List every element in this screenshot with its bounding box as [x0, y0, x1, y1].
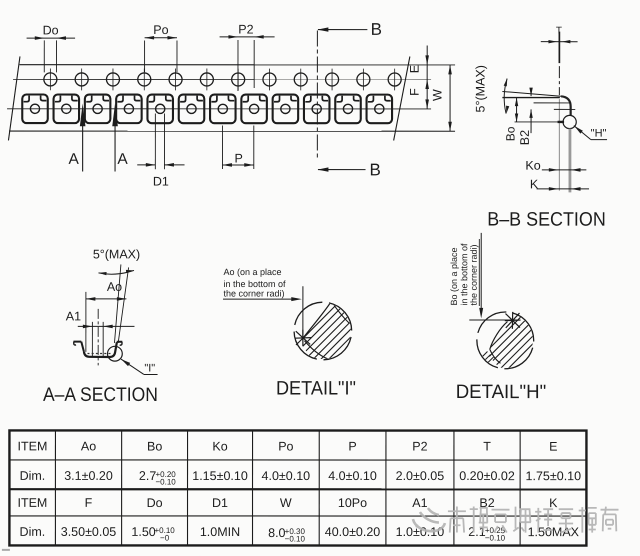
svg-text:in the bottom of: in the bottom of [459, 243, 469, 306]
svg-text:8.0: 8.0 [268, 526, 285, 540]
svg-text:A: A [117, 151, 128, 168]
svg-text:A1: A1 [412, 496, 427, 510]
svg-text:Po: Po [278, 439, 293, 453]
svg-text:E: E [549, 440, 557, 454]
svg-text:1.75±0.10: 1.75±0.10 [526, 469, 582, 483]
svg-text:Dim.: Dim. [20, 469, 46, 483]
svg-text:Ko: Ko [212, 439, 227, 453]
svg-text:P: P [348, 440, 356, 454]
svg-text:40.0±0.20: 40.0±0.20 [325, 525, 381, 539]
svg-text:D1: D1 [212, 496, 228, 510]
svg-text:−0.10: −0.10 [156, 477, 177, 486]
svg-text:B: B [371, 20, 382, 39]
svg-text:Ao: Ao [81, 439, 96, 453]
svg-text:1.15±0.10: 1.15±0.10 [192, 469, 248, 483]
svg-text:Dim.: Dim. [20, 525, 46, 539]
svg-text:1.0MIN: 1.0MIN [200, 525, 240, 539]
svg-text:K: K [530, 177, 539, 191]
svg-text:Ao (on a place: Ao (on a place [224, 267, 282, 277]
svg-text:5°(MAX): 5°(MAX) [474, 65, 488, 112]
svg-text:T: T [483, 440, 491, 454]
svg-text:1.50MAX: 1.50MAX [528, 525, 580, 539]
svg-text:Do: Do [147, 496, 163, 510]
svg-text:F: F [408, 88, 422, 96]
svg-text:Bo (on a place: Bo (on a place [449, 247, 459, 305]
svg-text:B2: B2 [518, 130, 532, 145]
svg-text:5°(MAX): 5°(MAX) [93, 247, 140, 261]
svg-text:W: W [431, 89, 445, 101]
svg-text:K: K [549, 496, 558, 510]
svg-text:B: B [370, 160, 381, 179]
svg-text:A–A SECTION: A–A SECTION [43, 384, 158, 406]
svg-text:ITEM: ITEM [17, 496, 47, 510]
svg-text:−0: −0 [160, 533, 170, 542]
svg-text:Ko: Ko [525, 159, 540, 173]
svg-text:10Po: 10Po [338, 496, 367, 510]
svg-text:F: F [85, 496, 93, 510]
svg-text:the corner radi): the corner radi) [469, 245, 479, 306]
svg-text:Do: Do [43, 23, 59, 37]
svg-text:Po: Po [153, 23, 168, 37]
svg-text:A: A [69, 151, 80, 168]
svg-text:E: E [408, 65, 422, 73]
svg-text:−0.10: −0.10 [285, 534, 306, 543]
svg-text:2.0±0.05: 2.0±0.05 [396, 469, 445, 483]
svg-text:DETAIL"H": DETAIL"H" [456, 381, 547, 403]
svg-text:4.0±0.10: 4.0±0.10 [262, 469, 311, 483]
svg-text:W: W [280, 496, 292, 510]
svg-text:"I": "I" [144, 362, 155, 374]
svg-text:DETAIL"I": DETAIL"I" [276, 377, 356, 399]
svg-text:P2: P2 [412, 440, 427, 454]
svg-text:Ao: Ao [107, 280, 122, 294]
svg-text:3.1±0.20: 3.1±0.20 [64, 469, 113, 483]
svg-text:2.7: 2.7 [139, 469, 156, 483]
svg-text:0.20±0.02: 0.20±0.02 [459, 469, 515, 483]
svg-text:3.50±0.05: 3.50±0.05 [61, 525, 117, 539]
svg-text:ITEM: ITEM [18, 439, 48, 453]
svg-text:−0.10: −0.10 [485, 534, 506, 543]
svg-text:A1: A1 [66, 309, 81, 323]
svg-text:D1: D1 [153, 174, 169, 188]
svg-text:B–B SECTION: B–B SECTION [487, 209, 606, 231]
svg-text:4.0±0.10: 4.0±0.10 [328, 469, 377, 483]
svg-text:Bo: Bo [147, 439, 162, 453]
svg-text:"H": "H" [591, 128, 607, 140]
svg-text:1.50: 1.50 [131, 525, 155, 539]
svg-text:the corner radi): the corner radi) [223, 288, 284, 298]
svg-text:P2: P2 [238, 22, 253, 36]
svg-text:Bo: Bo [504, 126, 518, 141]
svg-text:P: P [235, 151, 243, 165]
